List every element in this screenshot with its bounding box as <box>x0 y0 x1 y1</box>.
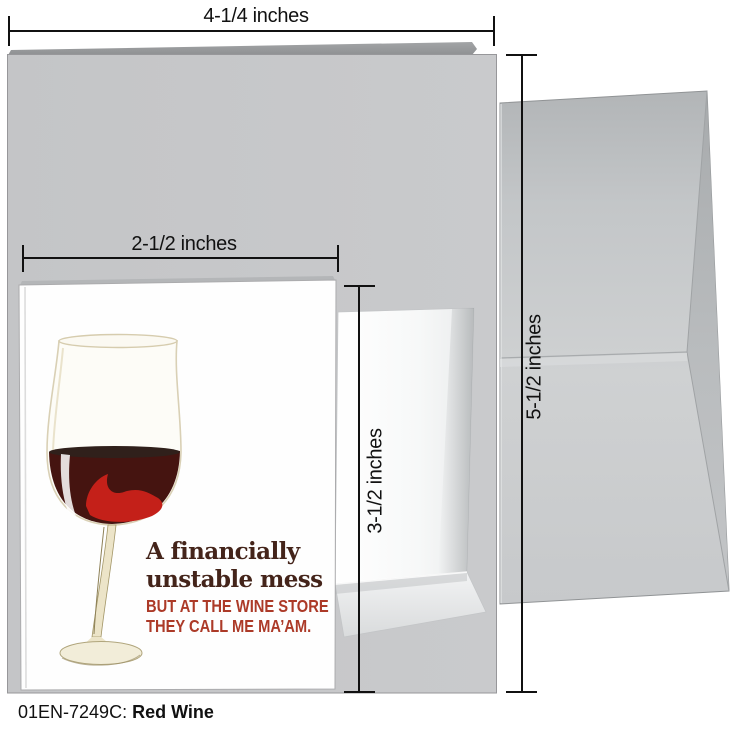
card-tagline-line1: BUT AT THE WINE STORE <box>146 597 314 617</box>
product-code: 01EN-7249C: <box>18 702 127 722</box>
product-title: Red Wine <box>132 702 214 722</box>
measure-folder-width-label: 4-1/4 inches <box>203 5 308 28</box>
measure-note-width-tick-left <box>22 245 24 272</box>
measure-folder-width-tick-left <box>8 16 10 46</box>
measure-note-height-line <box>358 286 360 693</box>
measure-note-height-tick-top <box>344 285 375 287</box>
measure-note-width-label: 2-1/2 inches <box>131 233 236 256</box>
measure-note-width-line <box>22 257 338 259</box>
card-tagline-line2: THEY CALL ME MA’AM. <box>146 617 314 637</box>
card-headline-line2: unstable mess <box>146 566 346 594</box>
card-headline-line1: A financially <box>146 538 346 566</box>
measure-folder-height-label: 5-1/2 inches <box>524 314 547 419</box>
measure-folder-height-tick-top <box>506 54 537 56</box>
measure-note-height-tick-bottom <box>344 691 375 693</box>
product-caption: 01EN-7249C: Red Wine <box>18 702 214 723</box>
measure-folder-width-tick-right <box>493 16 495 46</box>
note-card-text-block: A financially unstable mess BUT AT THE W… <box>146 538 346 636</box>
scene-canvas <box>0 0 738 738</box>
measure-note-height-label: 3-1/2 inches <box>365 428 388 533</box>
measure-folder-height-tick-bottom <box>506 691 537 693</box>
product-mockup-image: A financially unstable mess BUT AT THE W… <box>0 0 738 738</box>
card-tagline-block: BUT AT THE WINE STORE THEY CALL ME MA’AM… <box>146 597 314 636</box>
measure-folder-width-line <box>8 30 495 32</box>
measure-note-width-tick-right <box>337 245 339 272</box>
